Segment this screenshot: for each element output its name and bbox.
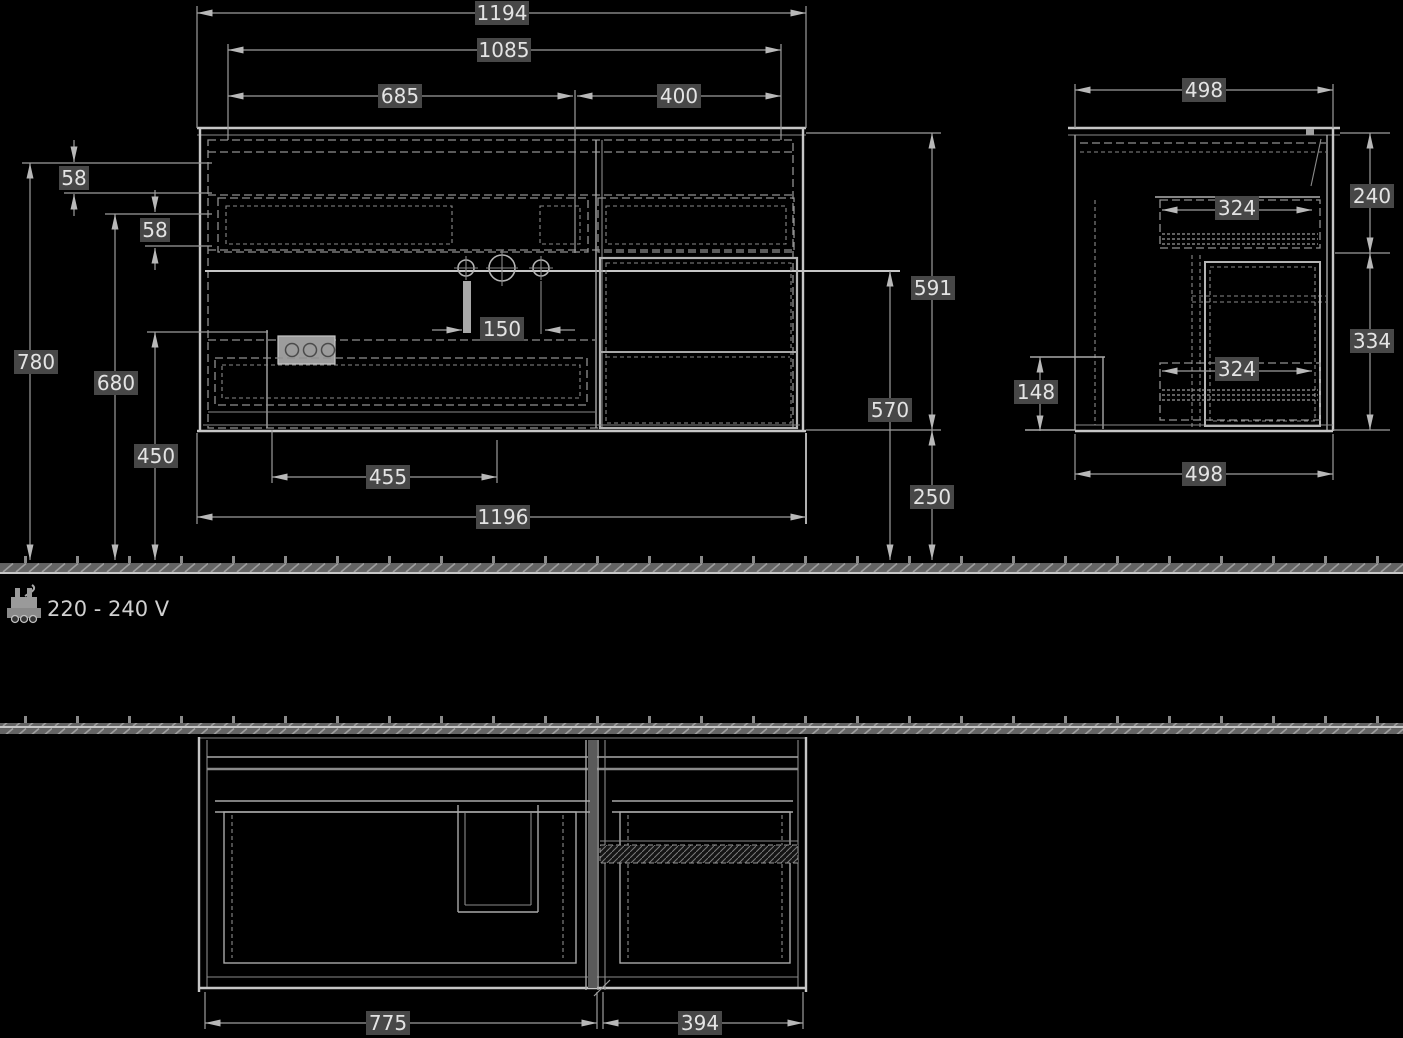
dim-label-shelf-width: 455 (366, 465, 410, 489)
svg-text:324: 324 (1218, 357, 1256, 381)
socket-box (278, 336, 335, 364)
drawing-canvas: 1194 1085 685 400 58 58 780 680 (0, 0, 1403, 1038)
dim-label-right-unit-width: 400 (657, 84, 701, 108)
dim-label-top-rim-offset: 58 (59, 166, 89, 190)
svg-text:780: 780 (17, 350, 55, 374)
interior-partition (267, 140, 602, 428)
dim-label-cabinet-width-bottom: 1196 (476, 505, 530, 529)
tap-holes (454, 250, 553, 286)
right-unit-front (600, 258, 797, 428)
right-top-drawer-front (598, 198, 794, 252)
side-hidden-rails (1080, 143, 1326, 428)
dim-label-upper-drawer-depth: 324 (1215, 196, 1259, 220)
svg-text:324: 324 (1218, 196, 1256, 220)
lower-drawer-box (208, 358, 595, 412)
svg-text:240: 240 (1353, 184, 1391, 208)
svg-text:450: 450 (137, 444, 175, 468)
svg-text:455: 455 (369, 465, 407, 489)
svg-text:685: 685 (381, 84, 419, 108)
power-plug-icon (7, 585, 41, 623)
side-view (1025, 128, 1340, 431)
plan-back-rail (207, 757, 798, 769)
svg-text:400: 400 (660, 84, 698, 108)
dim-label-left-unit-width: 685 (378, 84, 422, 108)
svg-text:334: 334 (1353, 329, 1391, 353)
svg-text:58: 58 (61, 166, 86, 190)
dim-label-right-compartment-width: 394 (678, 1011, 722, 1035)
svg-text:498: 498 (1185, 462, 1223, 486)
dim-label-height-overall: 780 (14, 350, 58, 374)
svg-text:150: 150 (483, 317, 521, 341)
dim-label-overall-width-top: 1194 (475, 1, 529, 25)
dim-label-lower-drawer-depth: 324 (1215, 357, 1259, 381)
plan-view (199, 737, 806, 992)
dim-label-left-compartment-width: 775 (366, 1011, 410, 1035)
front-view-dimensions: 1194 1085 685 400 58 58 780 680 (14, 1, 955, 560)
cabinet-hidden-outline (208, 140, 793, 428)
dim-label-cabinet-height: 591 (911, 276, 955, 300)
dim-label-floor-clearance: 250 (910, 485, 954, 509)
svg-text:1196: 1196 (478, 505, 529, 529)
dim-label-front-recess-height: 148 (1014, 380, 1058, 404)
side-inner-drawer-box (1205, 262, 1320, 426)
plan-outline (199, 737, 806, 992)
plan-right-drawer (612, 801, 793, 963)
technical-drawing-vanity: 1194 1085 685 400 58 58 780 680 (0, 0, 1403, 1038)
floor-line (0, 556, 1403, 574)
side-back-edge (1327, 128, 1333, 431)
plan-hidden-rail-bar (600, 841, 798, 863)
plan-left-drawer (215, 801, 590, 963)
plan-divider (586, 740, 605, 990)
dim-label-lower-section-height: 334 (1350, 329, 1394, 353)
left-drawer-front (218, 198, 588, 252)
svg-text:775: 775 (369, 1011, 407, 1035)
svg-text:58: 58 (142, 218, 167, 242)
voltage-label: 220 - 240 V (47, 597, 170, 621)
side-basin-top (1068, 128, 1340, 186)
dim-label-height-under-basin: 570 (868, 398, 912, 422)
dim-label-height-front-edge: 680 (94, 371, 138, 395)
svg-text:394: 394 (681, 1011, 719, 1035)
svg-text:1194: 1194 (477, 1, 528, 25)
dim-label-basin-width: 1085 (477, 38, 531, 62)
plan-siphon-cutout (458, 805, 538, 912)
svg-text:570: 570 (871, 398, 909, 422)
dim-label-height-shelf: 450 (134, 444, 178, 468)
svg-text:498: 498 (1185, 78, 1223, 102)
svg-text:1085: 1085 (479, 38, 530, 62)
svg-text:250: 250 (913, 485, 951, 509)
svg-text:680: 680 (97, 371, 135, 395)
wall-line (0, 716, 1403, 734)
dim-label-rail-offset: 58 (140, 218, 170, 242)
power-note: 220 - 240 V (7, 585, 170, 623)
dim-label-depth-top: 498 (1182, 78, 1226, 102)
front-view (197, 128, 900, 431)
dim-label-depth-bottom: 498 (1182, 462, 1226, 486)
svg-text:591: 591 (914, 276, 952, 300)
svg-text:148: 148 (1017, 380, 1055, 404)
dim-label-upper-section-height: 240 (1350, 184, 1394, 208)
dim-label-tap-hole-spacing: 150 (480, 317, 524, 341)
